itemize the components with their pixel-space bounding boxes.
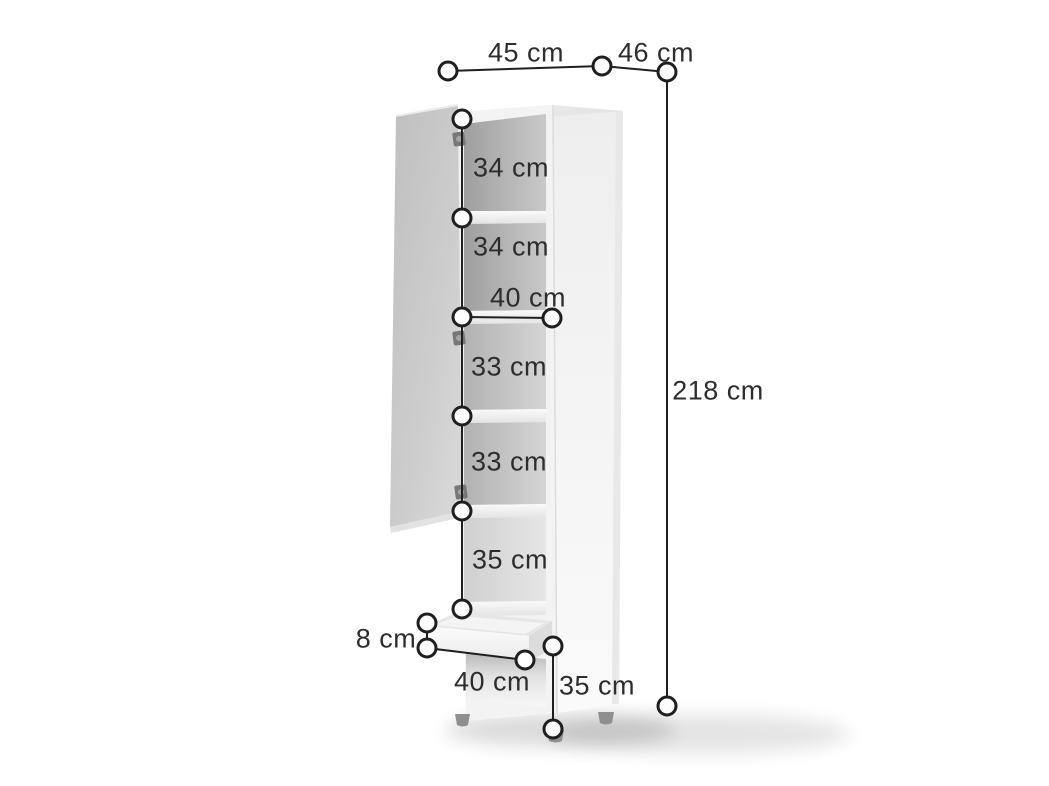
floor-shadow — [445, 713, 850, 754]
door-panel — [390, 105, 462, 527]
dimension-top-width-45 — [448, 66, 602, 71]
side-panel — [553, 105, 623, 713]
dimension-interior-width-40 — [462, 317, 552, 318]
dimension-diagram: 45 cm 46 cm 218 cm 34 cm 34 cm 40 cm 33 … — [0, 0, 1049, 786]
foot-front-left — [455, 714, 470, 727]
cabinet-illustration — [0, 0, 1049, 786]
foot-back-right — [598, 712, 614, 725]
